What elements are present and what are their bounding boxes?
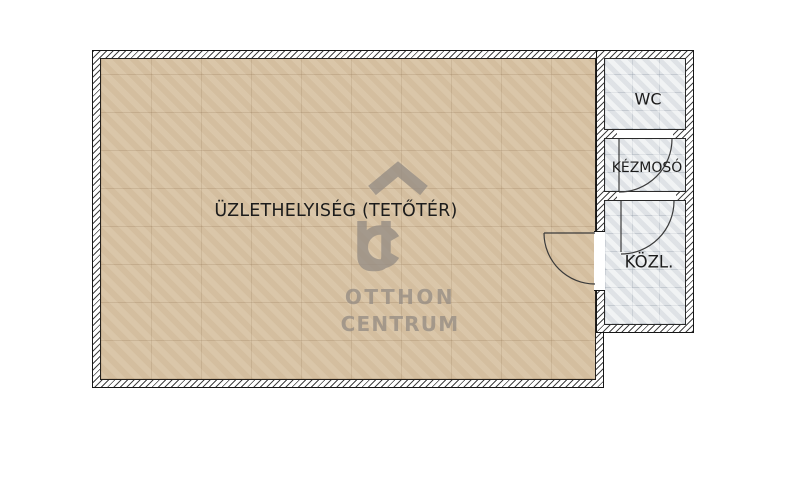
- main-room-label: ÜZLETHELYISÉG (TETŐTÉR): [214, 201, 457, 221]
- room-kezmoso-label: KÉZMOSÓ: [612, 160, 683, 176]
- room-wc-label: WC: [635, 90, 662, 109]
- floorplan-canvas: OTTHON CENTRUM ÜZLETHELYISÉG (TETŐTÉR) W…: [0, 0, 800, 504]
- door-opening-kezmoso: [617, 130, 673, 138]
- room-kozl-label: KÖZL.: [625, 253, 674, 272]
- door-opening-main-room: [594, 231, 605, 291]
- door-opening-kozl: [617, 192, 676, 200]
